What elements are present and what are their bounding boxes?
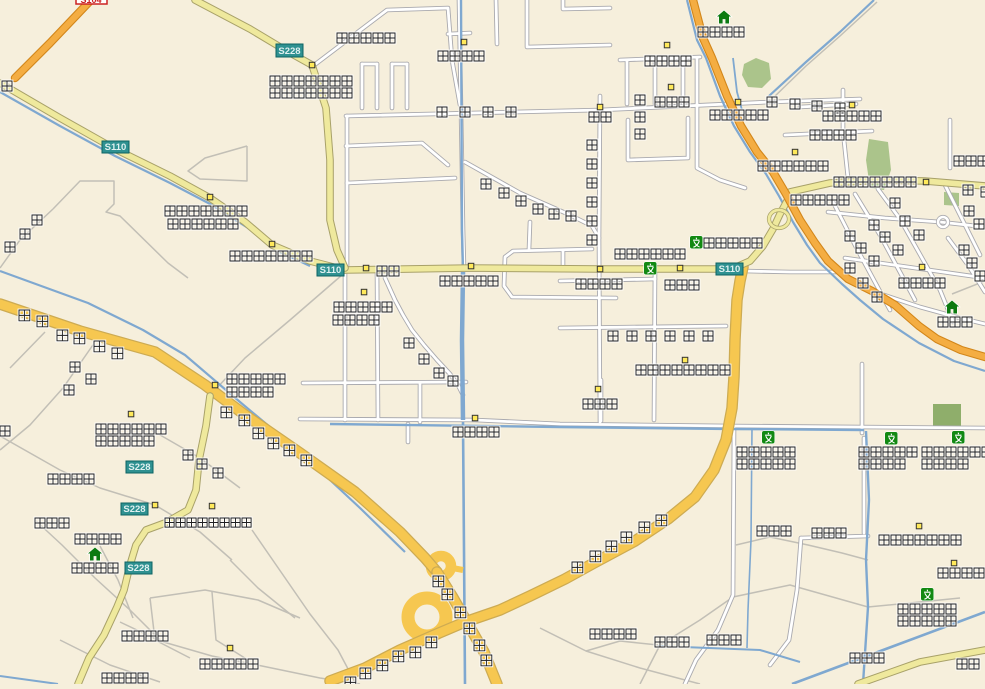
svg-text:S110: S110: [320, 265, 342, 276]
svg-text:S228: S228: [123, 504, 145, 515]
svg-text:S110: S110: [719, 264, 741, 275]
svg-text:S228: S228: [128, 462, 150, 473]
svg-text:S228: S228: [278, 46, 300, 57]
svg-text:S228: S228: [127, 563, 149, 574]
svg-text:S104: S104: [80, 0, 101, 5]
svg-text:S110: S110: [105, 142, 127, 153]
